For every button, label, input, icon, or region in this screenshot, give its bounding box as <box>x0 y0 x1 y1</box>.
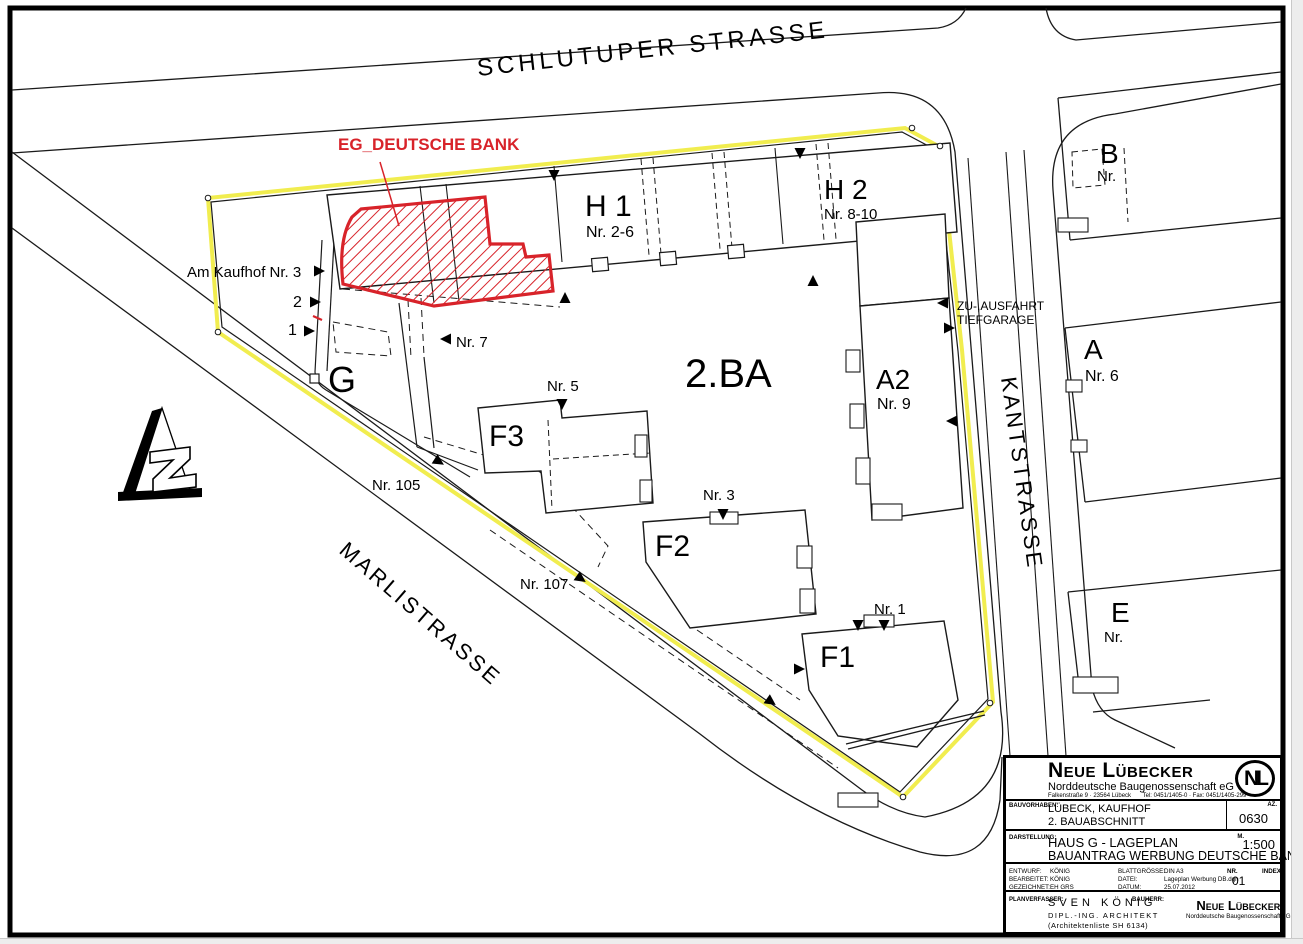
building-f3 <box>478 400 653 513</box>
label-no2: 2 <box>293 294 302 311</box>
label-h2: H 2 <box>824 174 868 205</box>
bauherr-value: Neue Lübecker Norddeutsche Baugenossensc… <box>1186 898 1291 920</box>
label-am-kaufhof: Am Kaufhof Nr. 3 <box>187 264 301 281</box>
planverfasser-registry: (Architektenliste SH 6134) <box>1048 921 1159 930</box>
area-label-2ba: 2.BA <box>685 352 772 396</box>
label-b-nr: Nr. <box>1097 168 1116 185</box>
street-label-marlistrasse: MARLISTRASSE <box>335 537 507 691</box>
bauherr-label: BAUHERR: <box>1132 897 1164 903</box>
label-a2: A2 <box>876 364 910 395</box>
building-a <box>1065 302 1281 502</box>
label-nr107: Nr. 107 <box>520 576 568 593</box>
bauvorhaben-value: LÜBECK, KAUFHOF 2. BAUABSCHNITT <box>1048 803 1151 829</box>
row-bauvorhaben: BAUVORHABEN: LÜBECK, KAUFHOF 2. BAUABSCH… <box>1006 801 1280 831</box>
title-block: Neue Lübecker Norddeutsche Baugenossensc… <box>1003 755 1283 935</box>
bearbeitet-label: BEARBEITET: <box>1009 876 1050 884</box>
datum-label: DATUM: <box>1118 884 1165 892</box>
company-address: Falkenstraße 9 · 23564 Lübeck <box>1048 793 1131 799</box>
bauvorhaben-line2: 2. BAUABSCHNITT <box>1048 816 1151 829</box>
company-name: Neue Lübecker <box>1048 759 1193 783</box>
blattgroesse-label: BLATTGRÖSSE: <box>1118 868 1165 876</box>
label-g: G <box>328 359 356 400</box>
darstellung-line1: HAUS G - LAGEPLAN <box>1048 835 1178 850</box>
bauvorhaben-line1: LÜBECK, KAUFHOF <box>1048 803 1151 816</box>
label-tiefgarage-1: ZU-,AUSFAHRT <box>957 299 1045 313</box>
label-nr7: Nr. 7 <box>456 334 488 351</box>
label-e-nr: Nr. <box>1104 629 1123 646</box>
building-f2 <box>643 510 816 628</box>
gezeichnet-value: EH GRS <box>1050 884 1074 892</box>
label-e: E <box>1111 597 1130 628</box>
viewport-right-edge <box>1291 0 1303 944</box>
row-darstellung: DARSTELLUNG: HAUS G - LAGEPLAN BAUANTRAG… <box>1006 833 1280 864</box>
meta-labels-left: ENTWURF: BEARBEITET: GEZEICHNET: <box>1009 868 1050 892</box>
label-no1: 1 <box>288 322 297 339</box>
label-nr5: Nr. 5 <box>547 378 579 395</box>
building-e <box>1068 570 1281 712</box>
az-cell: AZ. 0630 <box>1226 801 1280 829</box>
bank-label: EG_DEUTSCHE BANK <box>338 135 520 154</box>
viewport-bottom-edge <box>0 938 1303 944</box>
az-label: AZ. <box>1267 802 1277 808</box>
title-block-header: Neue Lübecker Norddeutsche Baugenossensc… <box>1006 758 1280 801</box>
entwurf-label: ENTWURF: <box>1009 868 1050 876</box>
row-meta: ENTWURF: BEARBEITET: GEZEICHNET: KÖNIG K… <box>1006 866 1280 892</box>
label-tiefgarage-2: TIEFGARAGE <box>957 313 1034 327</box>
building-b <box>1058 72 1281 240</box>
label-a2-nr: Nr. 9 <box>877 396 911 413</box>
company-phone: Tel: 0451/1405-0 · Fax: 0451/1405-299 <box>1143 793 1247 799</box>
az-value: 0630 <box>1239 811 1268 826</box>
m-value: 1:500 <box>1242 837 1275 852</box>
label-h1-nr: Nr. 2-6 <box>586 224 634 241</box>
label-a: A <box>1084 334 1103 365</box>
index-label: INDEX <box>1262 868 1281 875</box>
row-planverfasser: PLANVERFASSER: SVEN KÖNIG DIPL.-ING. ARC… <box>1006 894 1280 932</box>
label-h2-nr: Nr. 8-10 <box>824 206 877 223</box>
north-arrow-icon <box>118 408 202 501</box>
gezeichnet-label: GEZEICHNET: <box>1009 884 1050 892</box>
company-address-line: Falkenstraße 9 · 23564 Lübeck Tel: 0451/… <box>1048 793 1256 799</box>
label-b: B <box>1100 138 1119 169</box>
street-label-kantstrasse: KANTSTRASSE <box>996 375 1048 571</box>
datum-value: 25.07.2012 <box>1164 884 1239 892</box>
meta-labels-mid: BLATTGRÖSSE: DATEI: DATUM: <box>1118 868 1165 892</box>
label-f3: F3 <box>489 420 524 453</box>
label-nr1: Nr. 1 <box>874 601 906 618</box>
planverfasser-title: DIPL.-ING. ARCHITEKT <box>1048 911 1159 920</box>
bauherr-subtitle: Norddeutsche Baugenossenschaft eG <box>1186 913 1291 920</box>
label-f2: F2 <box>655 530 690 563</box>
label-nr105: Nr. 105 <box>372 477 420 494</box>
bearbeitet-value: KÖNIG <box>1050 876 1074 884</box>
label-f1: F1 <box>820 641 855 674</box>
label-nr3: Nr. 3 <box>703 487 735 504</box>
meta-values-left: KÖNIG KÖNIG EH GRS <box>1050 868 1074 892</box>
label-h1: H 1 <box>585 190 632 223</box>
entwurf-value: KÖNIG <box>1050 868 1074 876</box>
company-logo: NL <box>1235 760 1275 797</box>
label-a-nr: Nr. 6 <box>1085 368 1119 385</box>
nr-value: 01 <box>1232 874 1245 888</box>
datei-label: DATEI: <box>1118 876 1165 884</box>
site-plan-page: SCHLUTUPER STRASSE MARLISTRASSE KANTSTRA… <box>0 0 1303 944</box>
bauherr-name: Neue Lübecker <box>1186 898 1291 913</box>
company-subtitle: Norddeutsche Baugenossenschaft eG <box>1048 781 1234 793</box>
datei-value: Lageplan Werbung DB.dgn <box>1164 876 1239 884</box>
street-label-schlutuper: SCHLUTUPER STRASSE <box>476 16 830 82</box>
